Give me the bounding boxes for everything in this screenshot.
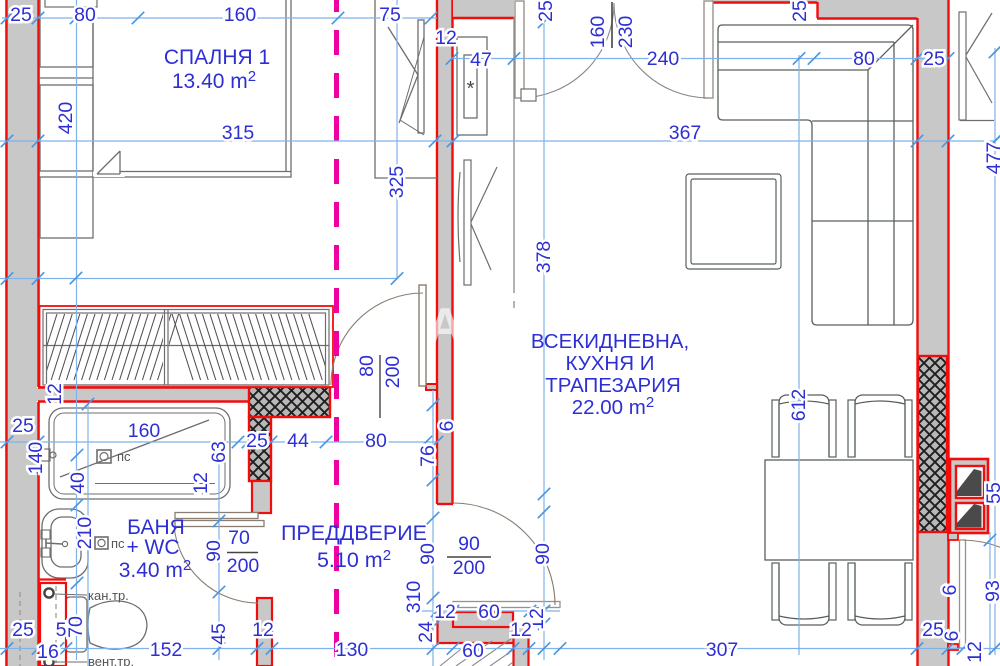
svg-text:152: 152 — [150, 639, 183, 661]
svg-text:310: 310 — [403, 581, 425, 614]
svg-text:25: 25 — [535, 0, 557, 22]
svg-text:6: 6 — [941, 631, 963, 642]
svg-text:160: 160 — [224, 4, 257, 26]
svg-text:40: 40 — [67, 472, 89, 494]
svg-text:70: 70 — [65, 616, 87, 638]
svg-text:130: 130 — [336, 639, 369, 661]
svg-text:25: 25 — [10, 4, 32, 26]
svg-text:63: 63 — [208, 441, 230, 463]
svg-text:160: 160 — [587, 16, 609, 49]
svg-text:45: 45 — [208, 623, 230, 645]
svg-text:76: 76 — [417, 445, 439, 467]
svg-text:90: 90 — [417, 543, 439, 565]
svg-text:22.00 m2: 22.00 m2 — [572, 394, 654, 419]
svg-text:200: 200 — [382, 356, 404, 389]
svg-text:3.40 m2: 3.40 m2 — [119, 557, 192, 582]
svg-text:240: 240 — [647, 48, 680, 70]
svg-text:47: 47 — [470, 49, 492, 71]
svg-text:90: 90 — [532, 543, 554, 565]
svg-text:вент.тр.: вент.тр. — [88, 654, 134, 666]
svg-text:378: 378 — [533, 241, 555, 274]
svg-text:93: 93 — [982, 580, 1000, 602]
svg-text:24: 24 — [415, 621, 437, 643]
svg-text:325: 325 — [386, 166, 408, 199]
svg-text:70: 70 — [228, 527, 250, 549]
svg-text:80: 80 — [74, 4, 96, 26]
svg-text:44: 44 — [287, 430, 309, 452]
svg-text:25: 25 — [789, 0, 811, 22]
svg-text:75: 75 — [379, 4, 401, 26]
svg-text:200: 200 — [453, 557, 486, 579]
svg-text:477: 477 — [983, 142, 1000, 175]
svg-text:25: 25 — [12, 619, 34, 641]
svg-text:кан.тр.: кан.тр. — [88, 588, 129, 603]
svg-text:ТРАПЕЗАРИЯ: ТРАПЕЗАРИЯ — [545, 374, 681, 397]
svg-text:пс: пс — [117, 449, 131, 464]
svg-text:13.40 m2: 13.40 m2 — [172, 68, 256, 93]
svg-text:25: 25 — [12, 415, 34, 437]
svg-text:90: 90 — [458, 533, 480, 555]
svg-text:25: 25 — [246, 430, 268, 452]
svg-text:12: 12 — [44, 383, 66, 405]
svg-text:ПРЕДДВЕРИЕ: ПРЕДДВЕРИЕ — [281, 521, 427, 545]
svg-text:55: 55 — [983, 482, 1000, 504]
svg-text:140: 140 — [25, 442, 47, 475]
svg-text:КУХНЯ И: КУХНЯ И — [566, 352, 655, 375]
svg-text:80: 80 — [853, 48, 875, 70]
svg-text:210: 210 — [74, 517, 96, 550]
svg-text:12: 12 — [190, 472, 212, 494]
svg-text:А: А — [427, 298, 463, 354]
svg-text:пс: пс — [111, 536, 125, 551]
svg-text:612: 612 — [788, 389, 810, 422]
svg-text:200: 200 — [227, 555, 260, 577]
svg-text:315: 315 — [222, 122, 255, 144]
svg-text:60: 60 — [462, 640, 484, 662]
svg-text:5.10 m2: 5.10 m2 — [317, 547, 391, 572]
svg-text:90: 90 — [203, 540, 225, 562]
svg-text:160: 160 — [128, 420, 161, 442]
svg-text:6: 6 — [436, 421, 458, 432]
svg-text:80: 80 — [356, 355, 378, 377]
svg-text:16: 16 — [37, 641, 59, 663]
svg-text:12: 12 — [510, 619, 532, 641]
svg-text:12: 12 — [434, 601, 456, 623]
svg-text:367: 367 — [669, 122, 702, 144]
svg-text:12: 12 — [435, 27, 457, 49]
svg-text:230: 230 — [615, 16, 637, 49]
svg-text:80: 80 — [365, 430, 387, 452]
svg-text:+ WC: + WC — [126, 536, 179, 559]
svg-text:25: 25 — [923, 48, 945, 70]
svg-text:307: 307 — [706, 639, 739, 661]
svg-text:12: 12 — [964, 641, 986, 663]
svg-text:ВСЕКИДНЕВНА,: ВСЕКИДНЕВНА, — [531, 330, 689, 353]
svg-text:*: * — [467, 78, 475, 100]
svg-text:420: 420 — [55, 102, 77, 135]
svg-text:6: 6 — [939, 585, 961, 596]
svg-text:60: 60 — [478, 601, 500, 623]
svg-text:12: 12 — [252, 619, 274, 641]
svg-text:СПАЛНЯ 1: СПАЛНЯ 1 — [164, 46, 270, 69]
